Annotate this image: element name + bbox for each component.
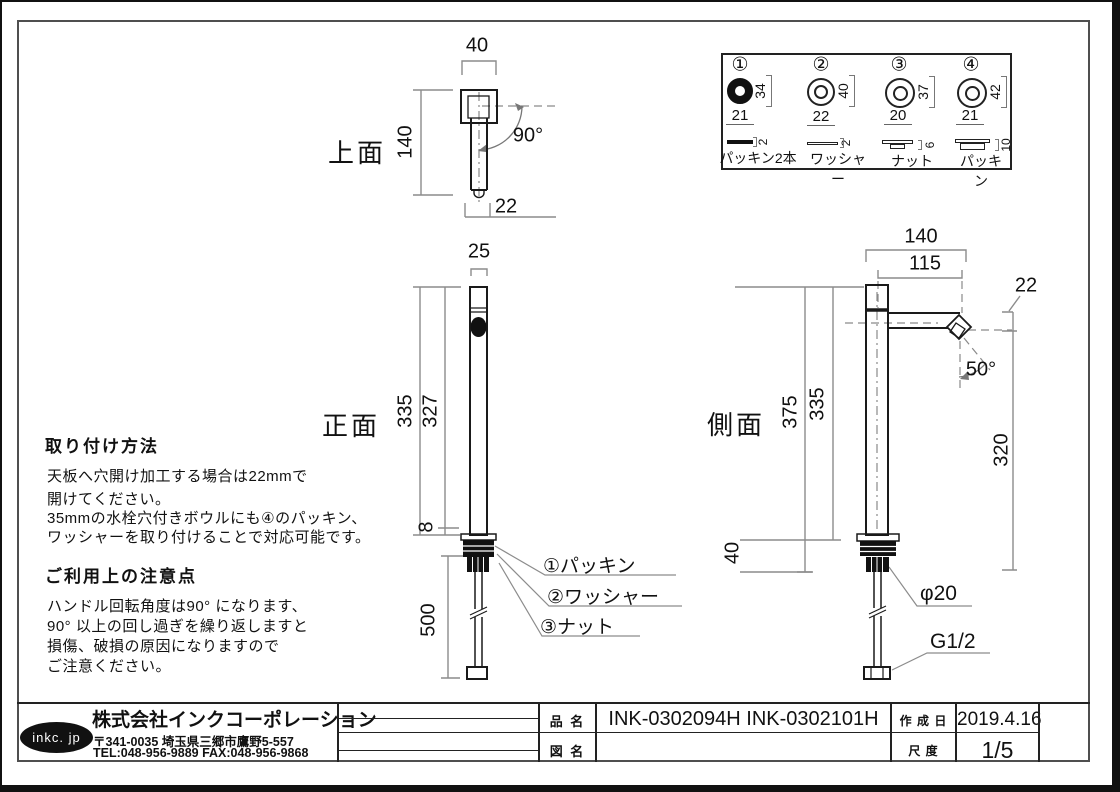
- date-scale-value-cell: 2019.4.16 1/5: [955, 704, 1038, 762]
- part-name-label: 品 名: [540, 711, 595, 730]
- caution-note-line: 損傷、破損の原因になりますので: [47, 635, 280, 656]
- legend-inner-dim: 21: [956, 107, 984, 125]
- install-note-line: 天板へ穴開け加工する場合は22mmで: [47, 465, 308, 486]
- washer-ring-hole-icon: [814, 85, 828, 99]
- caution-note-line: ハンドル回転角度は90° になります、: [47, 595, 307, 616]
- dim-side-tip: 22: [1015, 275, 1037, 298]
- part-number-value: INK-0302094H INK-0302101H: [597, 708, 890, 731]
- dim-top-height: 140: [395, 125, 418, 158]
- cell-divider: [892, 732, 955, 733]
- cell-divider: [540, 732, 595, 733]
- date-label: 作 成 日: [892, 712, 955, 729]
- dim-front-body: 327: [420, 394, 443, 427]
- scale-label: 尺 度: [892, 742, 955, 759]
- dim-top-tip: 22: [495, 196, 517, 219]
- install-note-line: ワッシャーを取り付けることで対応可能です。: [47, 526, 371, 547]
- dim-bracket: [929, 76, 935, 108]
- empty-cell: [1038, 704, 1090, 762]
- install-note-line: 35mmの水栓穴付きボウルにも④のパッキン、: [47, 507, 367, 528]
- cell-divider: [597, 732, 890, 733]
- revision-row-divider: [339, 750, 538, 751]
- legend-item-number: ①: [731, 54, 748, 77]
- dim-side-body: 335: [807, 387, 830, 420]
- caution-note-line: ご注意ください。: [47, 655, 171, 676]
- install-note-line: 開けてください。: [47, 488, 171, 509]
- front-view-label: 正面: [322, 406, 380, 443]
- legend-inner-dim: 21: [726, 107, 754, 125]
- name-label-cell: 品 名 図 名: [538, 704, 595, 762]
- cell-divider: [957, 732, 1038, 733]
- nut-ring-hole-icon: [893, 86, 908, 101]
- side-view-label: 側面: [707, 405, 765, 442]
- drawing-page: 上面 40 140 22 90° ① 34 21 2 パッキン2本 ② 40 2…: [0, 0, 1120, 792]
- dim-top-angle: 90°: [513, 125, 543, 148]
- dim-bracket: [840, 138, 844, 148]
- date-scale-label-cell: 作 成 日 尺 度: [890, 704, 955, 762]
- dim-bracket: [753, 137, 757, 147]
- legend-item-name: ワッシャー: [804, 149, 872, 189]
- top-view-label: 上面: [328, 133, 386, 170]
- packing2-ring-hole-icon: [965, 86, 980, 101]
- legend-item-name: ナット: [889, 151, 935, 171]
- dim-side-under: 40: [722, 542, 745, 564]
- dim-side-total: 375: [780, 395, 803, 428]
- dim-bracket: [995, 139, 999, 151]
- packing2-side-icon: [960, 143, 985, 150]
- legend-thickness-dim: 10: [999, 138, 1013, 151]
- company-cell: inkc. jp 株式会社インクコーポレーション 〒341-0035 埼玉県三郷…: [17, 704, 337, 762]
- dim-side-reach: 140: [904, 226, 937, 249]
- dim-top-width: 40: [466, 35, 488, 58]
- name-value-cell: INK-0302094H INK-0302101H: [595, 704, 890, 762]
- legend-inner-dim: 22: [807, 108, 835, 126]
- dim-bracket: [766, 75, 772, 107]
- dim-bracket: [1001, 76, 1007, 108]
- dim-side-spout: 115: [909, 253, 941, 276]
- revision-table: [337, 704, 538, 762]
- legend-thickness-dim: 6: [923, 142, 937, 149]
- scale-value: 1/5: [957, 737, 1038, 764]
- caution-notes-title: ご利用上の注意点: [45, 562, 197, 587]
- packing-ring-icon: [727, 78, 753, 104]
- washer-side-icon: [807, 142, 838, 145]
- company-name: 株式会社インクコーポレーション: [92, 705, 377, 732]
- company-logo: inkc. jp: [20, 722, 93, 753]
- dim-bracket: [849, 75, 855, 107]
- dim-side-angle: 50°: [966, 359, 996, 382]
- packing-side-icon: [727, 140, 753, 144]
- callout-nut: ③ナット: [540, 612, 614, 639]
- callout-packing: ①パッキン: [543, 551, 635, 578]
- revision-row-divider: [339, 718, 538, 719]
- nut-side-icon: [890, 144, 905, 149]
- caution-note-line: 90° 以上の回し過ぎを繰り返しますと: [47, 615, 308, 636]
- legend-inner-dim: 20: [884, 107, 912, 125]
- legend-item-number: ④: [962, 54, 979, 77]
- legend-item-name: パッキン: [955, 151, 1007, 191]
- drawing-name-label: 図 名: [540, 741, 595, 760]
- company-tel-fax: TEL:048-956-9889 FAX:048-956-9868: [93, 746, 308, 760]
- dim-front-total: 335: [395, 394, 418, 427]
- legend-item-number: ③: [890, 54, 907, 77]
- title-block: inkc. jp 株式会社インクコーポレーション 〒341-0035 埼玉県三郷…: [17, 702, 1090, 762]
- dim-side-thread: G1/2: [930, 630, 976, 654]
- dim-side-clear: 320: [991, 433, 1014, 466]
- dim-front-flange: 8: [416, 521, 439, 532]
- revision-row-divider: [339, 732, 538, 733]
- install-notes-title: 取り付け方法: [45, 432, 159, 457]
- dim-bracket: [918, 140, 922, 150]
- dim-front-width: 25: [468, 241, 490, 264]
- date-value: 2019.4.16: [957, 709, 1038, 731]
- callout-washer: ②ワッシャー: [547, 582, 659, 609]
- dim-front-hose: 500: [418, 603, 441, 636]
- dim-side-diameter: φ20: [920, 582, 957, 606]
- legend-item-name: パッキン2本: [717, 148, 799, 168]
- legend-thickness-dim: 2: [756, 139, 770, 146]
- legend-item-number: ②: [812, 54, 829, 77]
